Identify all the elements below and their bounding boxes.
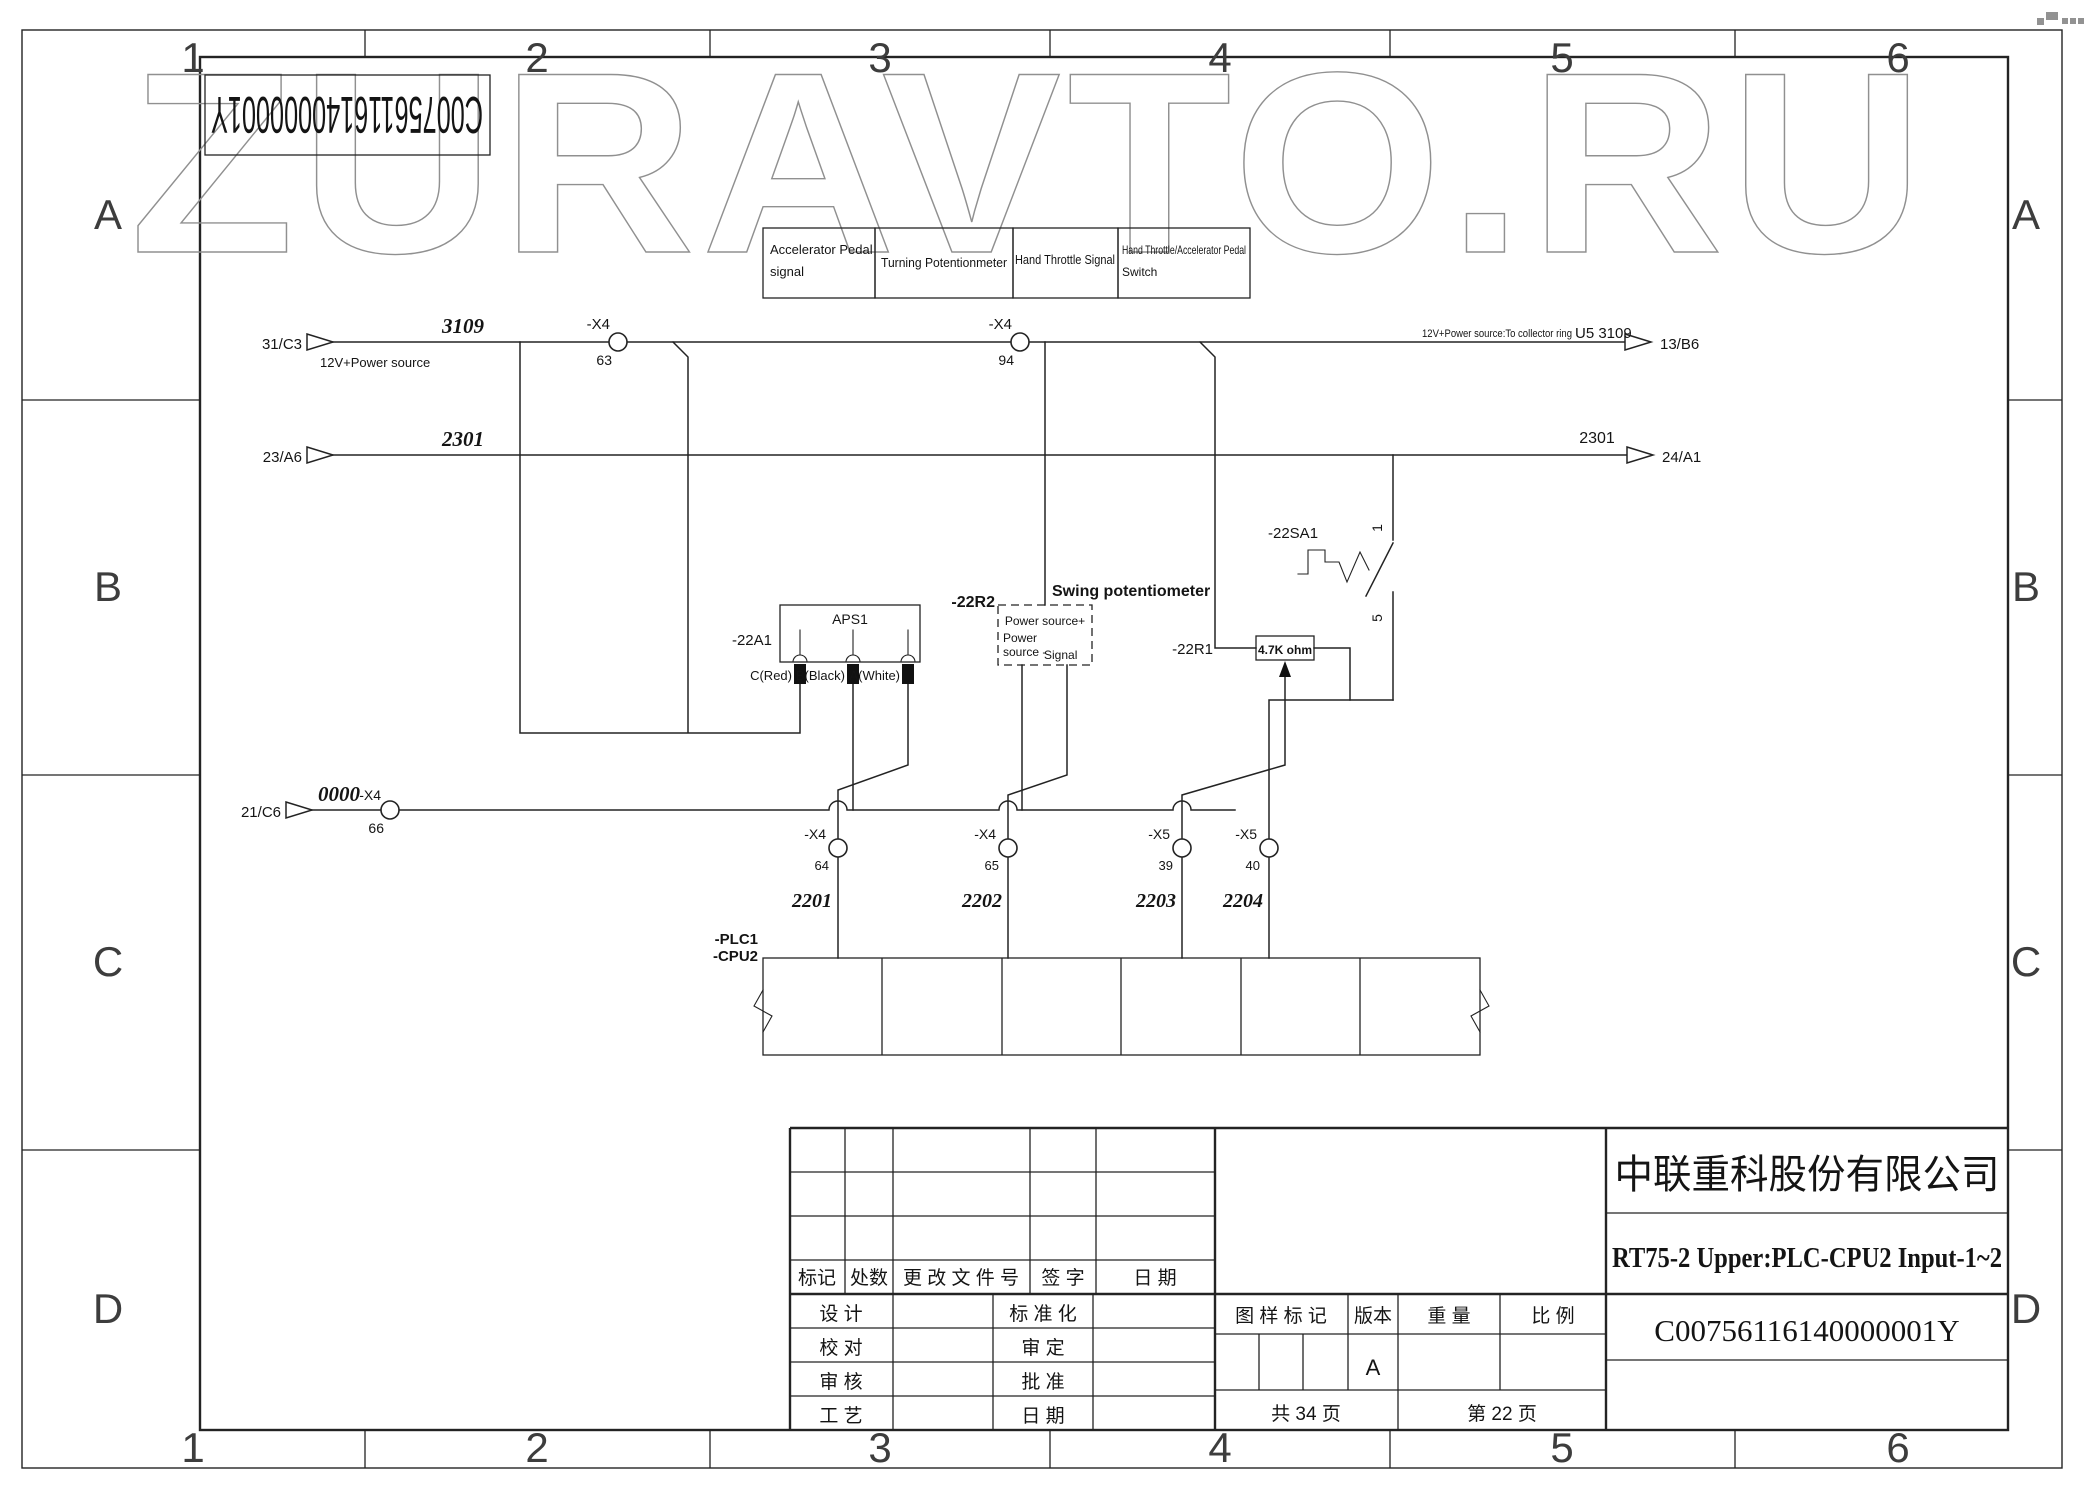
company-name: 中联重科股份有限公司 — [1615, 1152, 2000, 1197]
plc-cell-dividers — [882, 958, 1360, 1055]
resistor-ref: -22R1 — [1172, 641, 1213, 658]
info-h-weight: 重 量 — [1427, 1305, 1470, 1327]
net3109-wire-number: 3109 — [441, 314, 485, 338]
conn-x4-65-pin: 65 — [985, 858, 999, 873]
row-date: 日 期 — [1021, 1405, 1064, 1427]
component-aps1: APS1 -22A1 C(Red) B(Black) A(White) — [732, 605, 920, 684]
zone-row-d-r: D — [2011, 1285, 2041, 1332]
plc-input-connectors: -X4 64 2201 -X4 65 2202 -X5 39 2203 -X5 … — [791, 826, 1278, 912]
conn-x4-64-pin: 64 — [815, 858, 829, 873]
wire-pot-signal-2202 — [1008, 665, 1067, 958]
signal-box-4-line2: Switch — [1122, 265, 1157, 279]
aps1-name: APS1 — [832, 611, 868, 627]
row-standardize: 标 准 化 — [1009, 1303, 1077, 1325]
pot-ref: -22R2 — [951, 594, 995, 611]
wire-2204-number: 2204 — [1222, 890, 1263, 912]
row-approve-check: 审 定 — [1021, 1337, 1064, 1359]
net3109-dest: 13/B6 — [1660, 336, 1699, 353]
connector-x5-40-icon — [1260, 839, 1278, 857]
dest-arrow-icon — [1627, 447, 1653, 463]
connector-x4-94-icon — [1011, 333, 1029, 351]
aps1-pin-c-label: C(Red) — [750, 668, 792, 683]
total-pages: 共 34 页 — [1271, 1403, 1341, 1425]
conn-x4-66-pin: 66 — [368, 820, 384, 836]
pot-title: Swing potentiometer — [1052, 583, 1210, 600]
drawing-title: RT75-2 Upper:PLC-CPU2 Input-1~2 — [1612, 1242, 2002, 1274]
zone-col-1b: 1 — [181, 1424, 204, 1471]
info-table-texts: 图 样 标 记 版本 重 量 比 例 A 共 34 页 第 22 页 — [1235, 1305, 1575, 1425]
corner-print-marks-icon — [2037, 12, 2084, 25]
zone-letters-left: A B C D — [93, 191, 123, 1332]
conn-x4-94-name: -X4 — [989, 316, 1012, 333]
aps1-socket-icons — [793, 655, 915, 662]
component-switch-22sa1: -22SA1 1 5 — [1268, 455, 1393, 700]
zone-col-2b: 2 — [525, 1424, 548, 1471]
aps1-pin-b-label: B(Black) — [796, 668, 845, 683]
pot-pin-minus-line1: Power — [1003, 631, 1037, 645]
source-arrow-icon — [307, 447, 333, 463]
plc-ref-line1: -PLC1 — [715, 931, 758, 948]
schematic-svg: 1 2 3 4 5 6 1 2 3 4 5 6 A B C D A B C D — [0, 0, 2088, 1497]
pot-pin-signal: Signal — [1044, 648, 1077, 662]
wiring — [312, 342, 1627, 958]
rev-h-date: 日 期 — [1133, 1267, 1176, 1289]
conn-x5-39-pin: 39 — [1159, 858, 1173, 873]
zone-row-a: A — [94, 191, 122, 238]
aps1-ref: -22A1 — [732, 632, 772, 649]
zone-row-b: B — [94, 563, 122, 610]
switch-terminal-bottom: 5 — [1369, 614, 1385, 622]
net-0000: 21/C6 0000 -X4 66 — [241, 782, 399, 836]
rev-h-mark: 标记 — [798, 1267, 836, 1289]
signal-box-1-line2: signal — [770, 264, 804, 279]
connector-x5-39-icon — [1173, 839, 1191, 857]
zone-col-6b: 6 — [1886, 1424, 1909, 1471]
wire-resistor-supply — [1200, 342, 1256, 648]
flipped-number-text: C00756116140000001Y — [211, 85, 483, 143]
connector-x4-65-icon — [999, 839, 1017, 857]
bus-0000-ground — [312, 801, 1235, 810]
signal-box-2-line1: Turning Potentionmeter — [881, 255, 1008, 270]
net2301-wire-number-end: 2301 — [1579, 430, 1615, 447]
conn-x4-63-pin: 63 — [596, 352, 612, 368]
conn-x5-40-pin: 40 — [1246, 858, 1260, 873]
zone-row-a-r: A — [2012, 191, 2040, 238]
page-number: 第 22 页 — [1467, 1403, 1537, 1425]
zone-letters-right: A B C D — [2011, 191, 2041, 1332]
switch-detent-icon — [1298, 550, 1369, 582]
net2301-dest: 24/A1 — [1662, 449, 1701, 466]
source-arrow-icon — [286, 802, 312, 818]
flipped-drawing-number: C00756116140000001Y — [205, 75, 490, 155]
conn-x5-40-name: -X5 — [1235, 826, 1257, 842]
conn-x5-39-name: -X5 — [1148, 826, 1170, 842]
net2301-wire-number: 2301 — [441, 427, 484, 451]
aps1-pin-stems — [800, 630, 908, 655]
wire-aps-signal-2201 — [838, 684, 908, 958]
switch-blade — [1366, 543, 1393, 596]
zone-col-4b: 4 — [1208, 1424, 1231, 1471]
conn-x4-94-pin: 94 — [998, 352, 1014, 368]
conn-x4-63-name: -X4 — [587, 316, 610, 333]
rev-h-docno: 更 改 文 件 号 — [903, 1267, 1019, 1289]
info-h-scale: 比 例 — [1531, 1305, 1574, 1327]
zone-row-c-r: C — [2011, 938, 2041, 985]
wire-switch-node-2204 — [1269, 700, 1393, 958]
info-h-version: 版本 — [1354, 1305, 1392, 1327]
connector-x4-66-icon — [381, 801, 399, 819]
net3109-dest-note: 12V+Power source:To collector ring — [1422, 328, 1572, 340]
wire-2201-number: 2201 — [791, 890, 832, 912]
net3109-dest-ref: U5 3109 — [1575, 325, 1632, 342]
net3109-src: 31/C3 — [262, 336, 302, 353]
rev-h-signature: 签 字 — [1041, 1267, 1084, 1289]
zone-col-3b: 3 — [868, 1424, 891, 1471]
connector-x4-64-icon — [829, 839, 847, 857]
pot-pin-minus-line2: source - — [1003, 645, 1046, 659]
rev-table-texts: 标记 处数 更 改 文 件 号 签 字 日 期 设 计 校 对 审 核 工 艺 … — [798, 1267, 1177, 1427]
conn-x4-64-name: -X4 — [804, 826, 826, 842]
aps1-pin-a-label: A(White) — [849, 668, 900, 683]
plc-ref-line2: -CPU2 — [713, 948, 758, 965]
drawing-number: C00756116140000001Y — [1654, 1313, 1959, 1348]
version-value: A — [1366, 1355, 1381, 1380]
wire-resistor-out — [1314, 648, 1350, 700]
net0000-wire-number: 0000 — [318, 782, 361, 806]
connector-x4-63-icon — [609, 333, 627, 351]
source-arrow-icon — [307, 334, 333, 350]
zone-row-b-r: B — [2012, 563, 2040, 610]
row-approve: 批 准 — [1021, 1371, 1064, 1393]
switch-ref: -22SA1 — [1268, 525, 1318, 542]
schematic-sheet: 1 2 3 4 5 6 1 2 3 4 5 6 A B C D A B C D — [0, 0, 2088, 1497]
net0000-src: 21/C6 — [241, 804, 281, 821]
aps1-pin-a-icon — [902, 664, 914, 684]
zone-row-c: C — [93, 938, 123, 985]
signal-box-1-line1: Accelerator Pedal — [770, 242, 873, 257]
zone-row-d: D — [93, 1285, 123, 1332]
rev-h-count: 处数 — [850, 1267, 888, 1289]
pot-pin-plus: Power source+ — [1005, 614, 1085, 628]
wire-2202-number: 2202 — [961, 890, 1002, 912]
signal-box-3-line1: Hand Throttle Signal — [1015, 252, 1115, 267]
row-process: 工 艺 — [819, 1405, 862, 1427]
signal-box-4-line1: Hand Throttle/Accelerator Pedal — [1122, 243, 1246, 257]
component-resistor-22r1: -22R1 4.7K ohm — [1172, 636, 1314, 677]
net3109-src-note: 12V+Power source — [320, 355, 430, 370]
net-2301: 23/A6 2301 2301 24/A1 — [263, 427, 1701, 466]
conn-x4-65-name: -X4 — [974, 826, 996, 842]
wiper-arrow-icon — [1279, 661, 1291, 677]
wire-2203-number: 2203 — [1135, 890, 1176, 912]
row-review: 审 核 — [819, 1371, 862, 1393]
conn-x4-66-name: -X4 — [359, 787, 381, 803]
row-check: 校 对 — [819, 1337, 862, 1359]
info-h-drawing-mark: 图 样 标 记 — [1235, 1305, 1327, 1327]
switch-terminal-top: 1 — [1369, 524, 1385, 532]
title-block: 标记 处数 更 改 文 件 号 签 字 日 期 设 计 校 对 审 核 工 艺 … — [790, 1128, 2008, 1430]
row-design: 设 计 — [819, 1303, 862, 1325]
net2301-src: 23/A6 — [263, 449, 302, 466]
plc-block: -PLC1 -CPU2 — [713, 931, 1489, 1055]
zone-col-5b: 5 — [1550, 1424, 1573, 1471]
resistor-value: 4.7K ohm — [1258, 643, 1312, 657]
